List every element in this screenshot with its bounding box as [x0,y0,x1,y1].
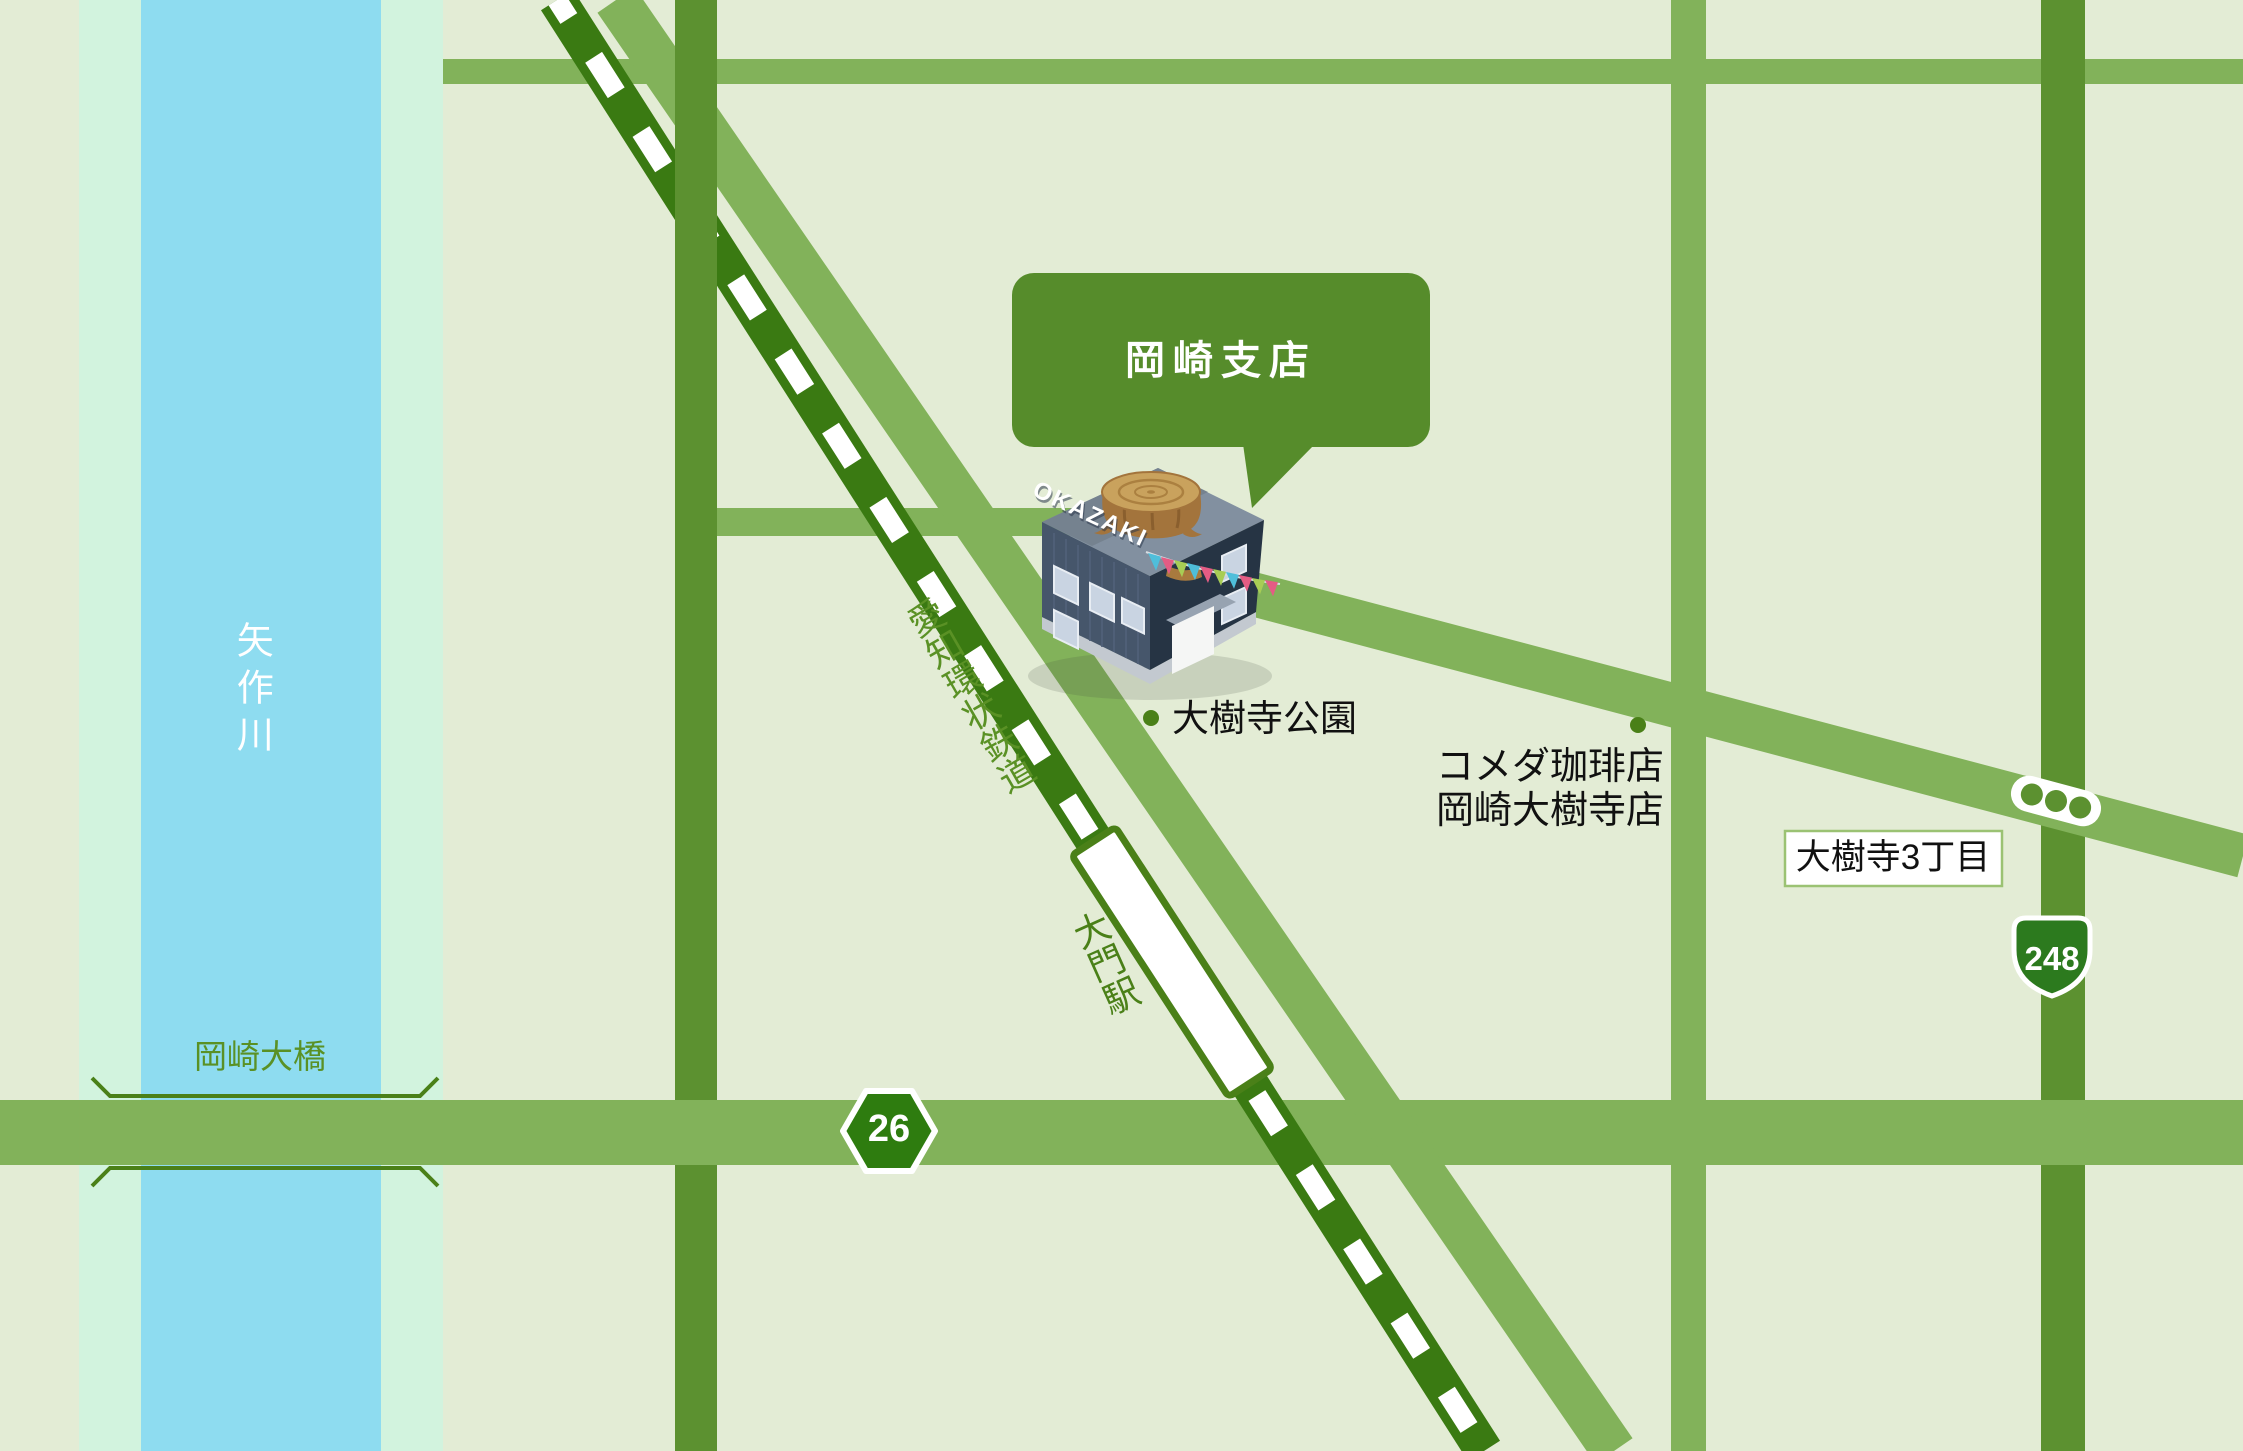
road-bottom-horizontal [0,1100,2243,1165]
river-label: 矢作川 [230,621,273,762]
branch-label: 岡崎支店 [1125,338,1317,384]
riverbank-left [79,0,141,1451]
cafe-dot [1630,717,1646,733]
road-olive-over-railway [675,45,717,300]
bridge-label: 岡崎大橋 [194,1038,326,1076]
park-dot [1143,710,1159,726]
cafe-label: コメダ珈琲店 岡崎大樹寺店 [1436,745,1664,833]
cafe-label-line1: コメダ珈琲店 [1436,745,1664,789]
district-label: 大樹寺3丁目 [1796,838,1990,878]
riverbank-right [381,0,443,1451]
road-vertical-olive-right [2041,0,2085,1451]
map-graphics [0,0,2243,1451]
route-26-number: 26 [868,1108,910,1152]
route-248-number: 248 [2024,940,2079,978]
park-label: 大樹寺公園 [1172,698,1357,741]
cafe-label-line2: 岡崎大樹寺店 [1436,789,1664,833]
map-canvas: 岡崎支店 OKAZAKI 大樹寺公園 コメダ珈琲店 岡崎大樹寺店 大樹寺3丁目 … [0,0,2243,1451]
